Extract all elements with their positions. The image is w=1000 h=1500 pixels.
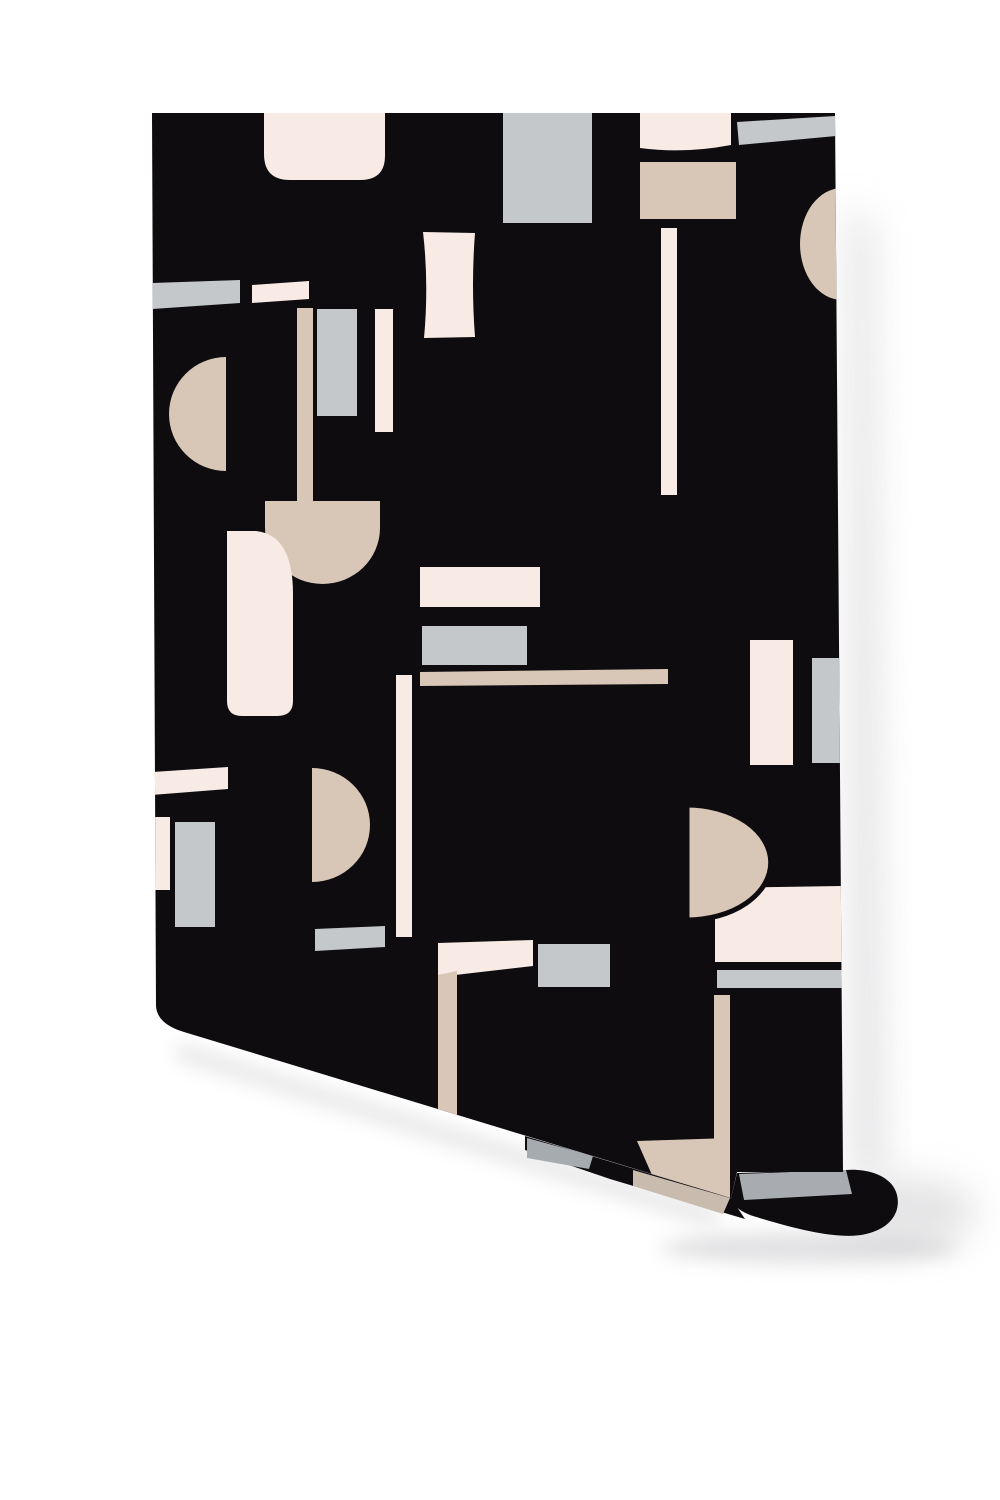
- mockup-canvas: [0, 0, 1000, 1500]
- sheet: [152, 113, 847, 1200]
- tan-stem-bar: [297, 308, 313, 505]
- cream-vbar-c: [396, 675, 412, 937]
- cream-vbar-b: [661, 228, 677, 495]
- tan-vbar-bottom: [714, 995, 730, 1142]
- gray-bar-under-cream: [717, 970, 843, 988]
- top-gray-rect: [503, 113, 592, 223]
- top-cream-rounded-rect: [264, 113, 385, 180]
- gray-rect-bottom: [538, 944, 610, 987]
- cream-tall-rect: [423, 232, 475, 338]
- top-cream-small-rect: [640, 113, 731, 150]
- curl-shadow: [660, 1232, 960, 1264]
- cream-vbar-a: [375, 309, 393, 432]
- cream-vbar-left-edge: [152, 817, 170, 890]
- gray-vrect-left: [175, 822, 215, 927]
- tan-descender: [438, 971, 457, 1125]
- top-tan-rect: [640, 162, 736, 219]
- gray-slanted-bar-mid: [315, 926, 385, 951]
- gray-hrect: [422, 626, 527, 665]
- cream-vrect-right: [750, 640, 793, 765]
- right-edge-shadow: [849, 200, 884, 1180]
- gray-small-vrect: [317, 309, 357, 416]
- gray-rect-right-edge: [812, 658, 847, 763]
- wallpaper-roll-mockup: [0, 0, 1000, 1500]
- cream-hrect: [420, 567, 540, 607]
- cream-bottle-rect: [227, 531, 293, 716]
- curl: [731, 1170, 898, 1236]
